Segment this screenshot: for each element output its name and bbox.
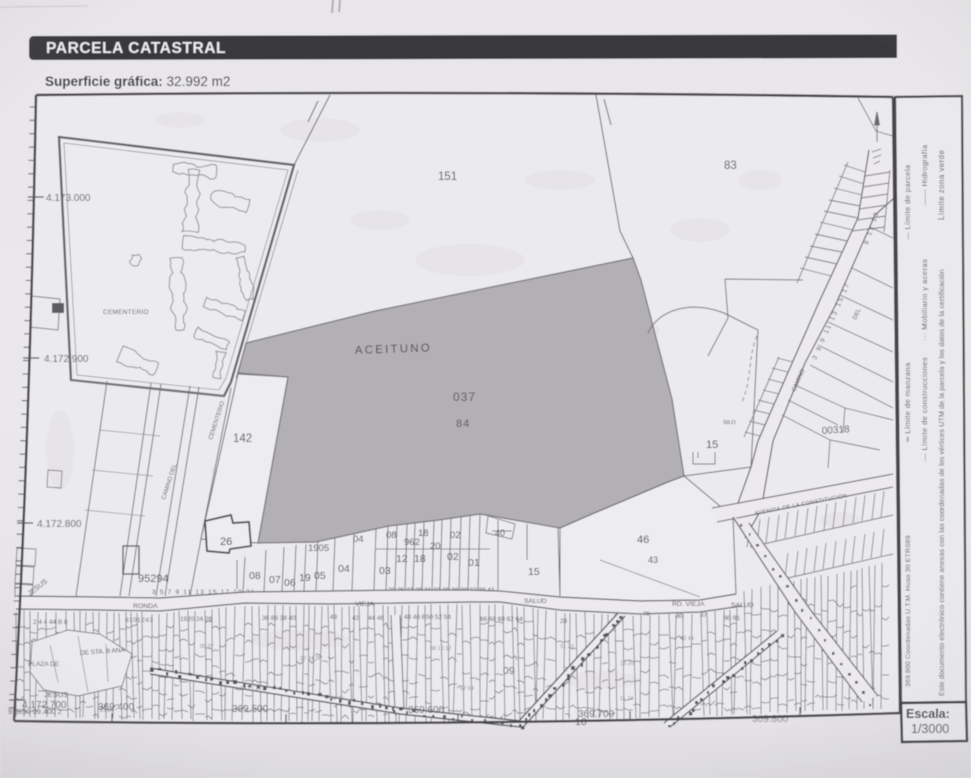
svg-text:22 24 26: 22 24 26 [300, 656, 321, 662]
svg-text:90 91: 90 91 [724, 615, 740, 622]
svg-text:SALUD: SALUD [731, 602, 754, 609]
svg-text:12: 12 [396, 553, 408, 565]
svg-text:4.173.000: 4.173.000 [46, 193, 91, 204]
svg-text:15: 15 [528, 566, 540, 578]
svg-text:04: 04 [353, 534, 364, 545]
svg-text:Escala:: Escala: [906, 707, 950, 721]
svg-text:RONDA: RONDA [133, 603, 158, 610]
svg-text:369.800 Coordenadas U.T.M. H: 369.800 Coordenadas U.T.M. Huso 30 ETRS8… [905, 535, 912, 687]
svg-text:PLAZA DE: PLAZA DE [28, 661, 60, 668]
svg-text:80: 80 [676, 613, 684, 620]
svg-text:151: 151 [438, 171, 457, 183]
svg-text:40: 40 [495, 528, 505, 538]
svg-text:05: 05 [314, 570, 326, 582]
svg-text:43: 43 [648, 555, 658, 565]
svg-text:42: 42 [352, 615, 360, 622]
svg-text:Límite zona verde: Límite zona verde [937, 150, 946, 220]
svg-text:97BS0 09.400 2: 97BS0 09.400 2 [8, 707, 62, 716]
svg-text:31 33: 31 33 [560, 644, 574, 650]
svg-text:1920 24 26: 1920 24 26 [180, 616, 212, 623]
svg-text:05 07: 05 07 [200, 644, 214, 650]
svg-text:84: 84 [456, 418, 470, 430]
svg-text:02: 02 [447, 551, 459, 563]
svg-text:PARCELA CATASTRAL: PARCELA CATASTRAL [46, 40, 226, 57]
svg-text:8101243: 8101243 [125, 617, 153, 624]
svg-text:SALUD: SALUD [524, 598, 547, 605]
svg-text:142: 142 [233, 433, 252, 445]
svg-text:08: 08 [249, 570, 261, 582]
svg-text:369.600: 369.600 [408, 705, 445, 716]
svg-text:02: 02 [450, 530, 461, 541]
svg-text:RD. VIEJA: RD. VIEJA [672, 601, 705, 608]
svg-text:52 54: 52 54 [460, 686, 474, 692]
svg-text:44 46: 44 46 [330, 696, 344, 702]
svg-text:11 13: 11 13 [620, 696, 633, 702]
svg-text:36 86 38 40: 36 86 38 40 [262, 615, 296, 622]
svg-text:87: 87 [700, 612, 708, 619]
svg-text:48 46 B50 52 54: 48 46 B50 52 54 [404, 614, 451, 621]
svg-text:CEMENTERIO: CEMENTERIO [103, 309, 149, 316]
svg-text:1/3000: 1/3000 [911, 722, 949, 736]
svg-text:78: 78 [643, 611, 651, 618]
svg-text:42 44: 42 44 [680, 636, 694, 642]
svg-text:369.500: 369.500 [232, 704, 269, 715]
svg-text:4.172.800: 4.172.800 [37, 519, 82, 530]
svg-text:08: 08 [386, 530, 397, 541]
svg-text:20: 20 [430, 541, 441, 552]
svg-text:95294: 95294 [138, 573, 169, 585]
svg-text:09: 09 [503, 665, 515, 677]
svg-text:2 4 4 44 B 8: 2 4 4 44 B 8 [33, 619, 68, 626]
svg-text:66 68 60 62 64: 66 68 60 62 64 [480, 616, 523, 623]
svg-text:18: 18 [414, 553, 426, 565]
svg-text:26: 26 [220, 536, 232, 548]
svg-text:15 17 19: 15 17 19 [240, 686, 261, 692]
svg-text:18 20: 18 20 [620, 661, 634, 667]
svg-text:03: 03 [379, 565, 391, 577]
svg-text:Este documento electrónico con: Este documento electrónico contiene anex… [937, 269, 946, 696]
svg-text:Superficie gráfica: 32.992 m2: Superficie gráfica: 32.992 m2 [45, 74, 230, 89]
svg-text:44 46: 44 46 [368, 615, 384, 622]
svg-text:SILO: SILO [723, 420, 736, 426]
svg-text:—— Hidrografía: —— Hidrografía [920, 144, 929, 205]
svg-text:JESUS: JESUS [44, 690, 68, 699]
svg-text:46: 46 [637, 534, 649, 546]
svg-text:— Límite de construcciones: — Límite de construcciones [920, 357, 929, 461]
svg-text:— Límite de parcela: — Límite de parcela [903, 164, 912, 240]
svg-text:1905: 1905 [308, 543, 329, 554]
svg-text:28: 28 [560, 618, 568, 625]
svg-text:04: 04 [338, 563, 350, 575]
svg-text:369.700: 369.700 [578, 709, 615, 720]
svg-text:07: 07 [269, 574, 281, 586]
svg-text:15: 15 [706, 439, 718, 451]
svg-text:00318: 00318 [821, 424, 850, 437]
svg-text:VIEJA: VIEJA [355, 601, 374, 608]
svg-text:037: 037 [453, 390, 476, 404]
svg-text:08 10 12: 08 10 12 [430, 646, 451, 652]
svg-text:06: 06 [284, 577, 296, 589]
svg-text:═ Límite de manzana: ═ Límite de manzana [903, 362, 912, 443]
svg-text:18: 18 [418, 528, 429, 539]
svg-text:19: 19 [299, 572, 311, 584]
svg-text:··· Mobiliario y aceras: ··· Mobiliario y aceras [920, 259, 929, 341]
svg-text:83: 83 [724, 160, 737, 172]
svg-text:43: 43 [330, 614, 338, 621]
svg-text:369.400: 369.400 [98, 702, 135, 713]
svg-text:4.172.900: 4.172.900 [44, 354, 89, 365]
svg-text:01: 01 [468, 557, 480, 569]
